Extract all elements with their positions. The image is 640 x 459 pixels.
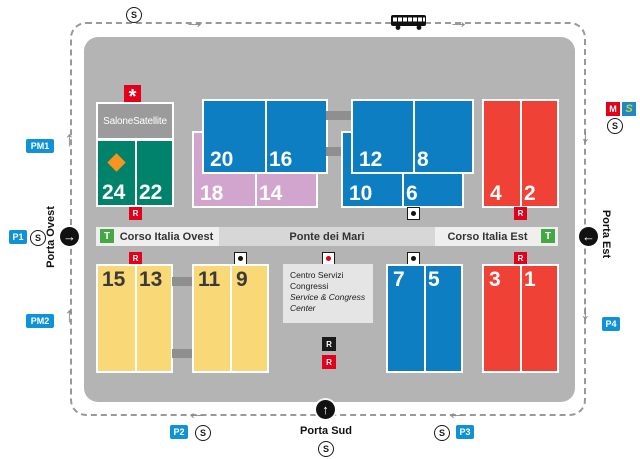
hall-22-label: 22 [139,182,162,203]
route-arrow-right-icon: → [448,11,469,32]
restaurant-icon: R [322,355,336,369]
gate-south-label: Porta Sud [286,425,366,437]
hall-divider [424,266,426,371]
street-ovest-label: Corso Italia Ovest [120,231,214,243]
route-arrow-up-icon: ↑ [64,305,75,326]
restaurant-icon: R [514,207,527,220]
parking-p3-badge: P3 [456,425,474,439]
srail-icon: S [622,102,636,116]
gate-west-label: Porta Ovest [44,197,58,277]
street-corso-italia-ovest: Corso Italia Ovest [96,227,219,246]
info-dot [238,256,243,261]
suburban-rail-icon: S [607,118,623,134]
salone-satellite-label: SaloneSatellite [96,102,174,140]
suburban-rail-icon: S [318,441,334,457]
tram-icon: T [100,229,114,243]
parking-pm2-badge: PM2 [26,314,54,328]
hall-13-label: 13 [139,269,162,290]
route-arrow-left-icon: ← [186,402,207,423]
hall-24-label: 24 [102,182,125,203]
parking-p2-badge: P2 [170,425,188,439]
hall-connector [172,349,194,358]
info-dot [411,211,416,216]
hall-divider [413,101,415,172]
hall-12-label: 12 [359,149,382,170]
info-point-icon [407,207,420,220]
suburban-rail-icon: S [195,425,211,441]
red-dot [326,256,331,261]
hall-block-7-5: 7 5 [386,264,463,373]
parking-p4-badge: P4 [602,317,620,331]
centro-servizi-line3: Service & Congress [290,292,373,303]
hall-block-3-1: 3 1 [482,264,559,373]
route-arrow-left-icon: ← [446,402,467,423]
gate-south-entrance-icon: ↑ [316,400,335,419]
tram-icon: T [541,229,555,243]
hall-20-label: 20 [210,149,233,170]
metro-icon: M [606,102,620,116]
gate-west-entrance-icon: → [60,227,79,246]
bus-icon [390,13,428,36]
hall-divider [135,141,137,205]
suburban-rail-icon: S [126,7,142,23]
hall-15-label: 15 [102,269,125,290]
street-ponte-dei-mari: Ponte dei Mari [219,227,435,246]
hall-4-label: 4 [490,183,502,204]
suburban-rail-icon: S [434,425,450,441]
info-dot [411,256,416,261]
hall-divider [230,266,232,371]
hall-11-label: 11 [198,269,220,290]
restaurant-icon: R [129,207,142,220]
hall-divider [520,266,522,371]
hall-16-label: 16 [269,149,292,170]
fairground-map: S → → PM1 ↑ P1 S Porta Ovest → PM2 ↑ M S… [0,0,640,459]
hall-block-24-22: 24 22 [96,139,174,207]
hall-8-label: 8 [417,149,429,170]
hall-block-20-16: 20 16 [202,99,328,174]
hall-9-label: 9 [236,269,248,290]
hall-1-label: 1 [524,269,536,290]
asterisk-icon: * [124,85,141,102]
route-arrow-down-icon: ↓ [580,302,591,323]
service-congress-center: Centro Servizi Congressi Service & Congr… [283,264,373,323]
restaurant-icon-black: R [322,337,336,351]
gate-east-entrance-icon: ← [579,227,598,246]
parking-p1-badge: P1 [9,230,27,244]
parking-pm1-badge: PM1 [26,139,54,153]
hall-divider [265,101,267,172]
hall-divider [135,266,137,371]
hall-14-label: 14 [259,183,282,204]
hall-7-label: 7 [393,269,405,290]
hall-2-label: 2 [524,183,536,204]
hall-5-label: 5 [428,269,440,290]
centro-servizi-line4: Center [290,303,373,314]
hall-block-4-2: 4 2 [482,99,559,208]
street-corso-italia-est: Corso Italia Est [435,227,558,246]
hall-6-label: 6 [406,183,418,204]
street-est-label: Corso Italia Est [447,231,527,243]
route-arrow-up-icon: ↑ [64,129,75,150]
hall-divider [520,101,522,206]
route-arrow-right-icon: → [184,11,205,32]
hall-18-label: 18 [200,183,223,204]
centro-servizi-line2: Congressi [290,281,373,292]
route-arrow-down-icon: ↓ [580,125,591,146]
hall-10-label: 10 [349,183,372,204]
gate-east-label: Porta Est [599,194,613,274]
hall-connector [326,111,352,120]
hall-block-11-9: 11 9 [192,264,269,373]
street-ponte-label: Ponte dei Mari [289,231,364,243]
hall-connector [172,277,194,286]
hall-block-12-8: 12 8 [351,99,474,174]
centro-servizi-line1: Centro Servizi [290,270,373,281]
hall-block-15-13: 15 13 [96,264,173,373]
hall-3-label: 3 [489,269,501,290]
